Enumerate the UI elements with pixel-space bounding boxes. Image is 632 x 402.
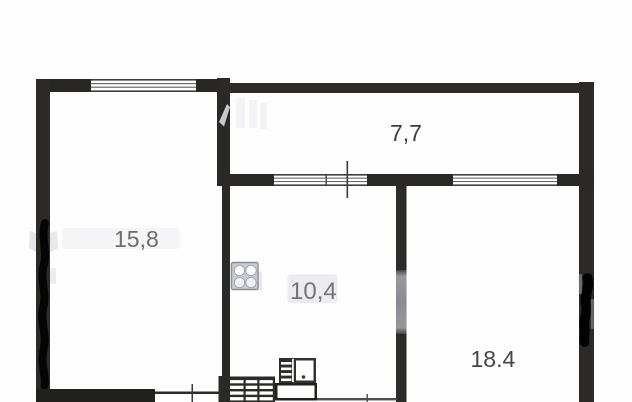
svg-text:10,4: 10,4 (290, 278, 337, 305)
svg-text:18.4: 18.4 (471, 346, 516, 372)
svg-text:15,8: 15,8 (114, 226, 159, 252)
svg-text:7,7: 7,7 (390, 120, 422, 146)
